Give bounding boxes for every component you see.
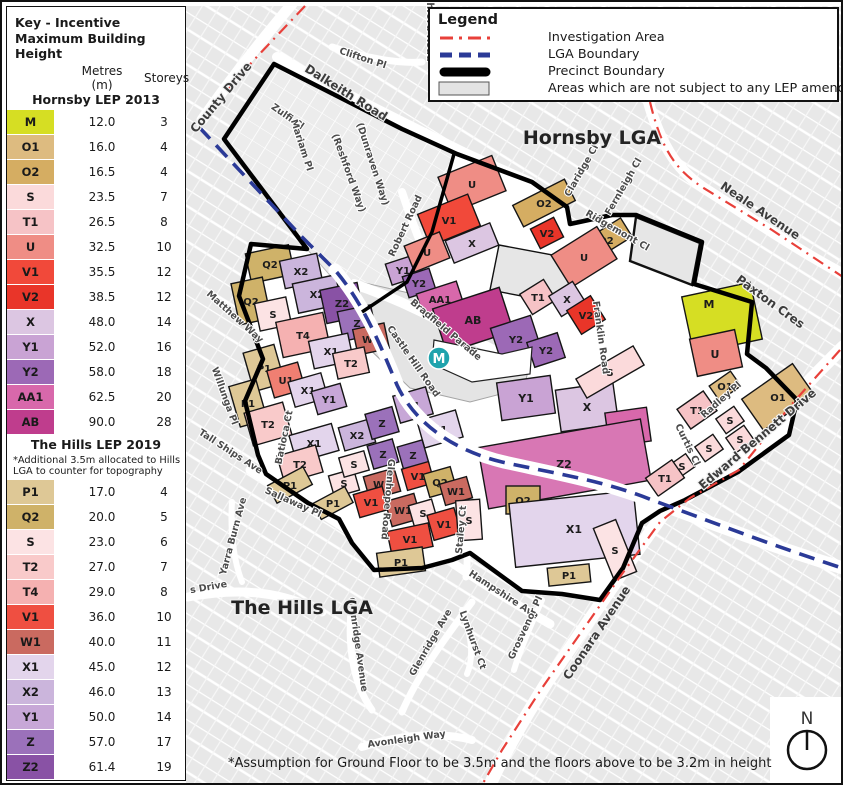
svg-text:V1: V1 xyxy=(403,535,418,546)
svg-text:X: X xyxy=(583,401,592,414)
swatch: M xyxy=(7,110,54,134)
key-row: V136.010 xyxy=(7,604,185,629)
svg-text:V2: V2 xyxy=(540,229,555,240)
svg-text:V2: V2 xyxy=(579,311,594,322)
swatch: V1 xyxy=(7,605,54,629)
key-row: S23.57 xyxy=(7,185,185,210)
key-row: S23.06 xyxy=(7,529,185,554)
svg-text:Z: Z xyxy=(378,419,385,430)
svg-text:Z: Z xyxy=(409,451,416,462)
svg-text:T1: T1 xyxy=(658,474,672,485)
svg-text:S: S xyxy=(269,310,276,321)
svg-text:U: U xyxy=(580,253,588,264)
hornsby-lep-title: Hornsby LEP 2013 xyxy=(7,90,185,110)
swatch: T2 xyxy=(7,555,54,579)
swatch: V2 xyxy=(7,285,54,309)
key-row: P117.04 xyxy=(7,479,185,504)
hornsby-lga-label: Hornsby LGA xyxy=(523,127,661,149)
hornsby-rows: M12.03 O116.04 O216.54 S23.57 T126.58 U3… xyxy=(7,110,185,435)
key-row: M12.03 xyxy=(7,110,185,135)
the-hills-lga-label: The Hills LGA xyxy=(231,597,373,619)
metro-station-icon: M xyxy=(428,347,450,369)
key-row: Y150.014 xyxy=(7,704,185,729)
svg-text:T4: T4 xyxy=(296,331,310,342)
hills-rows: P117.04 Q220.05 S23.06 T227.07 T429.08 V… xyxy=(7,479,185,779)
key-row: W140.011 xyxy=(7,629,185,654)
svg-text:T2: T2 xyxy=(261,420,275,431)
hills-lep-title: The Hills LEP 2019 xyxy=(7,435,185,455)
legend-item-investigation-area: Investigation Area xyxy=(438,29,829,46)
col-metres: Metres (m) xyxy=(74,64,130,92)
swatch: AB xyxy=(7,410,54,434)
key-panel: Key - Incentive Maximum Building Height … xyxy=(6,6,186,781)
svg-text:P1: P1 xyxy=(562,571,576,582)
key-row: Z57.017 xyxy=(7,729,185,754)
swatch: V1 xyxy=(7,260,54,284)
svg-text:X: X xyxy=(468,239,476,250)
swatch: X2 xyxy=(7,680,54,704)
key-column-headers: Metres (m) Storeys xyxy=(7,66,185,90)
svg-text:U: U xyxy=(711,348,720,361)
svg-text:V1: V1 xyxy=(442,216,457,227)
swatch: S xyxy=(7,530,54,554)
key-row: U32.510 xyxy=(7,235,185,260)
swatch: Z xyxy=(7,730,54,754)
svg-text:Y2: Y2 xyxy=(508,335,523,346)
zone-T2: T2 xyxy=(333,347,370,379)
key-row: AA162.520 xyxy=(7,385,185,410)
svg-text:Z2: Z2 xyxy=(335,299,349,310)
svg-text:X1: X1 xyxy=(566,523,582,536)
key-row: V238.512 xyxy=(7,285,185,310)
north-label: N xyxy=(801,709,814,729)
svg-text:S: S xyxy=(611,546,618,557)
svg-text:X2: X2 xyxy=(294,267,309,278)
swatch: X1 xyxy=(7,655,54,679)
hills-lep-note: *Additional 3.5m allocated to Hills LGA … xyxy=(7,455,185,480)
swatch: W1 xyxy=(7,630,54,654)
svg-text:P1: P1 xyxy=(326,499,340,510)
swatch: T1 xyxy=(7,210,54,234)
key-row: T429.08 xyxy=(7,579,185,604)
svg-text:X2: X2 xyxy=(350,431,365,442)
svg-text:V1: V1 xyxy=(364,498,379,509)
swatch: P1 xyxy=(7,480,54,504)
key-row: Z261.419 xyxy=(7,754,185,779)
key-row: AB90.028 xyxy=(7,410,185,435)
svg-text:S: S xyxy=(419,509,426,520)
legend-title: Legend xyxy=(438,12,829,28)
key-title: Key - Incentive Maximum Building Height xyxy=(7,7,185,64)
svg-text:T1: T1 xyxy=(531,293,545,304)
svg-text:Q2: Q2 xyxy=(262,260,278,271)
svg-text:Y1: Y1 xyxy=(321,395,336,406)
svg-text:W1: W1 xyxy=(447,487,465,498)
swatch: Y1 xyxy=(7,335,54,359)
svg-text:O2: O2 xyxy=(536,199,552,210)
key-row: O116.04 xyxy=(7,135,185,160)
key-row: O216.54 xyxy=(7,160,185,185)
zone-P1: P1 xyxy=(547,564,591,586)
swatch: T4 xyxy=(7,580,54,604)
key-row: V135.512 xyxy=(7,260,185,285)
svg-text:Y2: Y2 xyxy=(411,279,426,290)
svg-text:S: S xyxy=(726,416,733,427)
swatch: AA1 xyxy=(7,385,54,409)
key-row: Q220.05 xyxy=(7,504,185,529)
swatch: X xyxy=(7,310,54,334)
lga-boundary-line-icon xyxy=(438,47,492,63)
swatch: Y2 xyxy=(7,360,54,384)
swatch: S xyxy=(7,185,54,209)
ground-floor-assumption-note: *Assumption for Ground Floor to be 3.5m … xyxy=(228,756,828,771)
investigation-area-line-icon xyxy=(438,30,492,46)
map-sheet: Q2 X2 X2 Z2 Z Q2 S T4 X1 W1 T2 P1 U1 X1 … xyxy=(0,0,843,785)
key-row: X246.013 xyxy=(7,679,185,704)
swatch: Q2 xyxy=(7,505,54,529)
svg-text:X: X xyxy=(563,295,571,306)
legend-box: Legend Investigation Area LGA Boundary P… xyxy=(428,7,839,102)
svg-text:Y2: Y2 xyxy=(538,346,553,357)
grey-area-swatch-icon xyxy=(438,81,492,97)
svg-text:U: U xyxy=(468,180,476,191)
swatch: O2 xyxy=(7,160,54,184)
svg-text:Y1: Y1 xyxy=(517,392,534,405)
svg-text:M: M xyxy=(704,298,715,311)
key-row: Y258.018 xyxy=(7,360,185,385)
precinct-boundary-line-icon xyxy=(438,64,492,80)
key-row: T126.58 xyxy=(7,210,185,235)
svg-text:S: S xyxy=(350,460,357,471)
key-row: T227.07 xyxy=(7,554,185,579)
key-row: X145.012 xyxy=(7,654,185,679)
svg-text:M: M xyxy=(433,352,446,367)
swatch: Y1 xyxy=(7,705,54,729)
svg-text:AB: AB xyxy=(465,314,482,327)
key-row: X48.014 xyxy=(7,310,185,335)
swatch: U xyxy=(7,235,54,259)
legend-item-lga-boundary: LGA Boundary xyxy=(438,46,829,63)
svg-text:T2: T2 xyxy=(344,359,358,370)
zone-Y1: Y1 xyxy=(497,375,556,420)
key-row: Y152.016 xyxy=(7,335,185,360)
svg-text:S: S xyxy=(705,444,712,455)
swatch: Z2 xyxy=(7,755,54,779)
svg-text:O1: O1 xyxy=(770,393,786,404)
legend-item-precinct-boundary: Precinct Boundary xyxy=(438,63,829,80)
legend-item-no-lep-amendment: Areas which are not subject to any LEP a… xyxy=(438,80,829,97)
col-storeys: Storeys xyxy=(144,71,184,85)
svg-text:V1: V1 xyxy=(437,520,452,531)
swatch: O1 xyxy=(7,135,54,159)
